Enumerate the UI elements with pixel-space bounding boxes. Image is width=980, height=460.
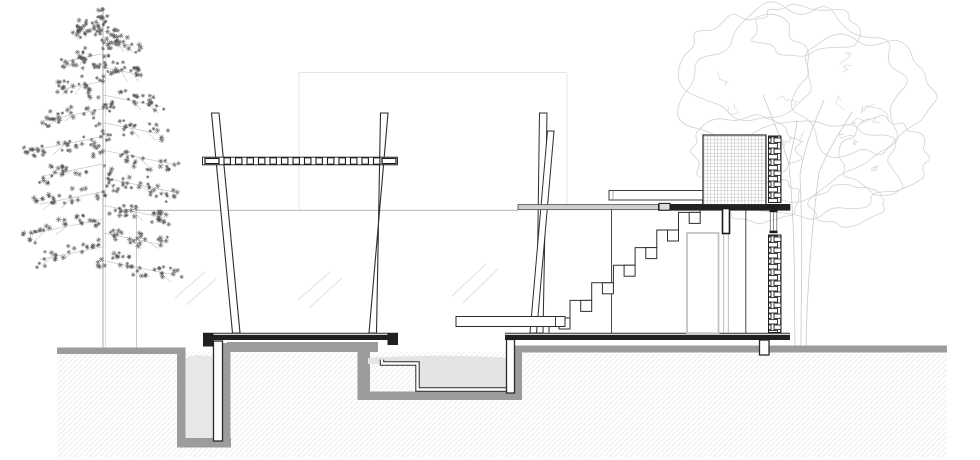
staircase	[549, 205, 700, 333]
needle-cluster-mark	[159, 274, 165, 280]
reflection-mark	[452, 264, 486, 296]
needle-cluster-mark	[50, 174, 54, 178]
foliage-scribble	[871, 166, 878, 171]
rafter-block	[247, 158, 253, 164]
needle-cluster-mark	[82, 135, 86, 139]
needle-cluster-mark	[146, 165, 154, 173]
needle-cluster-mark	[122, 133, 126, 137]
needle-cluster-mark	[45, 191, 52, 198]
needle-cluster-mark	[79, 141, 85, 147]
foliage-scribble	[862, 105, 868, 115]
rafter-block	[259, 158, 265, 164]
needle-cluster-mark	[165, 128, 171, 134]
needle-cluster-mark	[79, 74, 84, 79]
needle-cluster-mark	[124, 34, 131, 41]
needle-cluster-mark	[82, 45, 88, 51]
needle-cluster-mark	[109, 231, 113, 235]
needle-cluster-mark	[146, 175, 150, 179]
needle-cluster-mark	[37, 261, 42, 266]
needle-cluster-mark	[121, 60, 125, 64]
needle-cluster-mark	[84, 18, 89, 23]
deck-end-cap-right	[388, 333, 399, 345]
needle-cluster-mark	[116, 261, 124, 269]
needle-cluster-mark	[106, 25, 110, 29]
bench-plank	[456, 317, 565, 327]
pergola-post-right	[369, 113, 388, 333]
needle-cluster-mark	[91, 21, 94, 24]
needle-cluster-mark	[69, 90, 73, 94]
needle-cluster-mark	[60, 148, 64, 152]
needle-cluster-mark	[76, 171, 83, 178]
needle-cluster-mark	[126, 97, 131, 102]
needle-cluster-mark	[137, 48, 141, 52]
needle-cluster-mark	[71, 245, 77, 251]
rafter-block	[236, 158, 242, 164]
foliage-scribble	[851, 118, 866, 124]
needle-cluster-mark	[161, 107, 166, 112]
canopy-outline	[752, 4, 861, 56]
pool-bottom	[358, 392, 523, 401]
needle-cluster-mark	[112, 34, 118, 40]
deciduous-trunk	[800, 175, 802, 346]
needle-cluster-mark	[77, 82, 81, 86]
pavilion	[518, 135, 790, 333]
needle-cluster-mark	[146, 182, 150, 186]
pergola-beam-end-right	[382, 158, 396, 163]
needle-cluster-mark	[147, 93, 152, 98]
needle-cluster-mark	[43, 250, 47, 254]
rafter-block	[328, 158, 334, 164]
rafter-block	[362, 158, 368, 164]
pergola-post-left	[212, 113, 241, 333]
needle-cluster-mark	[54, 89, 60, 95]
bench	[456, 317, 565, 327]
rafter-block	[351, 158, 357, 164]
needle-cluster-mark	[125, 173, 133, 181]
needle-cluster-mark	[89, 137, 94, 142]
needle-cluster-mark	[120, 176, 125, 181]
needle-cluster-mark	[122, 203, 127, 208]
needle-cluster-mark	[80, 241, 86, 247]
needle-cluster-mark	[66, 80, 70, 84]
stair-block	[668, 230, 679, 241]
needle-cluster-mark	[48, 250, 54, 256]
reflection-mark	[186, 279, 216, 305]
floor-pile	[507, 340, 515, 394]
deciduous-trunk	[789, 120, 797, 165]
reflection-mark	[309, 278, 342, 308]
needle-cluster-mark	[37, 180, 41, 184]
door-frame	[687, 233, 719, 333]
rafter-block	[374, 158, 380, 164]
needle-cluster-mark	[69, 185, 77, 193]
needle-cluster-mark	[117, 118, 122, 123]
needle-cluster-mark	[128, 130, 135, 137]
deciduous-trunk	[789, 165, 795, 346]
needle-cluster-mark	[62, 79, 67, 84]
needle-cluster-mark	[134, 50, 138, 54]
parapet	[609, 191, 705, 201]
reflection-mark	[298, 272, 330, 300]
rafter-block	[305, 158, 311, 164]
needle-cluster-mark	[95, 236, 102, 243]
needle-cluster-mark	[131, 213, 138, 220]
needle-cluster-mark	[154, 194, 159, 199]
needle-cluster-mark	[110, 59, 116, 65]
needle-cluster-mark	[149, 219, 154, 224]
needle-cluster-mark	[105, 29, 111, 35]
foliage-scribble	[853, 140, 858, 145]
floor-slab	[505, 335, 790, 340]
ground-band-left	[57, 348, 178, 355]
needle-cluster-mark	[164, 200, 168, 204]
brick-pier-upper	[769, 136, 782, 203]
needle-cluster-mark	[72, 170, 79, 177]
needle-cluster-mark	[129, 69, 133, 73]
needle-cluster-mark	[69, 82, 76, 89]
needle-cluster-mark	[179, 274, 184, 279]
left-tree	[20, 6, 185, 348]
foliage-scribble	[838, 133, 854, 138]
deck-end-cap-left	[203, 333, 214, 347]
needle-cluster-mark	[117, 251, 121, 255]
reflection-mark	[463, 269, 498, 303]
architectural-section-canvas	[0, 0, 980, 460]
deciduous-trunk	[806, 172, 819, 346]
needle-cluster-mark	[120, 254, 126, 260]
needle-cluster-mark	[55, 216, 61, 222]
needle-cluster-mark	[104, 13, 110, 19]
rafter-block	[293, 158, 299, 164]
brick-pier-lower	[769, 235, 782, 333]
conifer-branch	[103, 150, 172, 164]
needle-cluster-mark	[176, 160, 182, 166]
needle-cluster-mark	[115, 186, 122, 193]
canopy-outline	[839, 115, 930, 195]
needle-cluster-mark	[137, 265, 143, 271]
canopy-outline	[791, 34, 937, 157]
needle-cluster-mark	[78, 186, 86, 194]
needle-cluster-mark	[153, 121, 160, 128]
needle-cluster-mark	[157, 163, 164, 170]
diagonal-struts	[530, 113, 554, 333]
needle-cluster-mark	[21, 144, 27, 150]
foliage-scribble	[782, 138, 792, 146]
needle-cluster-mark	[122, 65, 127, 70]
rafter-block	[282, 158, 288, 164]
conifer-twig	[121, 71, 127, 81]
needle-cluster-mark	[47, 108, 53, 114]
needle-cluster-mark	[101, 262, 107, 268]
needle-cluster-mark	[111, 256, 115, 260]
needle-cluster-mark	[110, 100, 114, 104]
slab-joint-box	[659, 203, 670, 210]
needle-cluster-mark	[91, 116, 96, 121]
needle-cluster-mark	[107, 109, 111, 113]
needle-cluster-mark	[94, 75, 99, 80]
needle-cluster-mark	[162, 265, 166, 269]
edge-beam	[723, 209, 730, 234]
needle-cluster-mark	[62, 201, 67, 206]
needle-cluster-mark	[130, 272, 136, 278]
needle-cluster-mark	[123, 89, 128, 94]
needle-cluster-mark	[117, 212, 123, 218]
needle-cluster-mark	[79, 249, 86, 256]
needle-cluster-mark	[60, 111, 65, 116]
pit-wall-left	[177, 348, 186, 448]
needle-cluster-mark	[42, 263, 49, 270]
rafter-block	[270, 158, 276, 164]
stair-block	[581, 300, 592, 311]
rafter-block	[316, 158, 322, 164]
needle-cluster-mark	[60, 58, 64, 62]
section-drawing-svg	[0, 0, 980, 460]
needle-cluster-mark	[140, 93, 146, 99]
needle-cluster-mark	[116, 61, 120, 65]
needle-cluster-mark	[75, 17, 83, 25]
stair-block	[602, 283, 613, 294]
needle-cluster-mark	[95, 94, 101, 100]
stair-block	[646, 248, 657, 259]
rafter-block	[339, 158, 345, 164]
needle-cluster-mark	[158, 242, 164, 248]
foliage-scribble	[840, 53, 853, 65]
deciduous-trunk	[800, 100, 824, 175]
pergola-beam-end-left	[205, 158, 219, 163]
foliage-scribble	[718, 72, 728, 87]
needle-cluster-mark	[56, 192, 62, 198]
needle-cluster-mark	[74, 215, 79, 220]
background-references	[137, 73, 568, 348]
needle-cluster-mark	[141, 100, 145, 104]
needle-cluster-mark	[80, 65, 86, 71]
needle-cluster-mark	[127, 236, 133, 242]
foliage-scribble	[843, 65, 852, 72]
deck-pile	[214, 341, 223, 441]
stair-block	[689, 212, 700, 223]
conifer-tree	[20, 6, 185, 348]
deck-slab	[203, 335, 398, 340]
foliage-scribble	[836, 96, 845, 110]
needle-cluster-mark	[65, 243, 71, 249]
strip-footing	[760, 340, 770, 355]
needle-cluster-mark	[110, 178, 113, 181]
conifer-twig	[119, 43, 124, 52]
foliage-scribble	[776, 96, 797, 106]
clerestory-sill	[770, 231, 778, 234]
needle-cluster-mark	[93, 32, 98, 37]
mesh-screen-block	[703, 135, 766, 205]
deciduous-trunk	[819, 112, 852, 172]
needle-cluster-mark	[40, 144, 45, 149]
needle-cluster-mark	[106, 210, 113, 217]
pit-infill	[186, 355, 216, 438]
conifer-twig	[53, 144, 65, 155]
foliage-scribble	[728, 103, 739, 115]
needle-cluster-mark	[35, 265, 40, 270]
needle-cluster-mark	[110, 183, 116, 189]
needle-cluster-mark	[165, 235, 169, 239]
needle-cluster-mark	[168, 266, 172, 270]
ground-band-right	[515, 346, 947, 353]
reflection-mark	[175, 272, 205, 298]
needle-cluster-mark	[122, 118, 126, 122]
needle-cluster-mark	[117, 32, 124, 39]
needle-cluster-mark	[87, 52, 93, 58]
needle-cluster-mark	[106, 133, 110, 137]
underdeck-ground-band	[227, 342, 378, 352]
clerestory-head	[770, 210, 778, 212]
foliage-scribble	[800, 130, 806, 142]
pergola	[203, 113, 398, 333]
needle-cluster-mark	[124, 264, 131, 271]
rafter-block	[224, 158, 230, 164]
needle-cluster-mark	[42, 257, 47, 262]
needle-cluster-mark	[135, 269, 139, 273]
needle-cluster-mark	[39, 195, 46, 202]
needle-cluster-mark	[163, 238, 170, 245]
stair-block	[624, 265, 635, 276]
needle-cluster-mark	[151, 127, 155, 131]
needle-cluster-mark	[129, 186, 133, 190]
needle-cluster-mark	[147, 121, 152, 126]
